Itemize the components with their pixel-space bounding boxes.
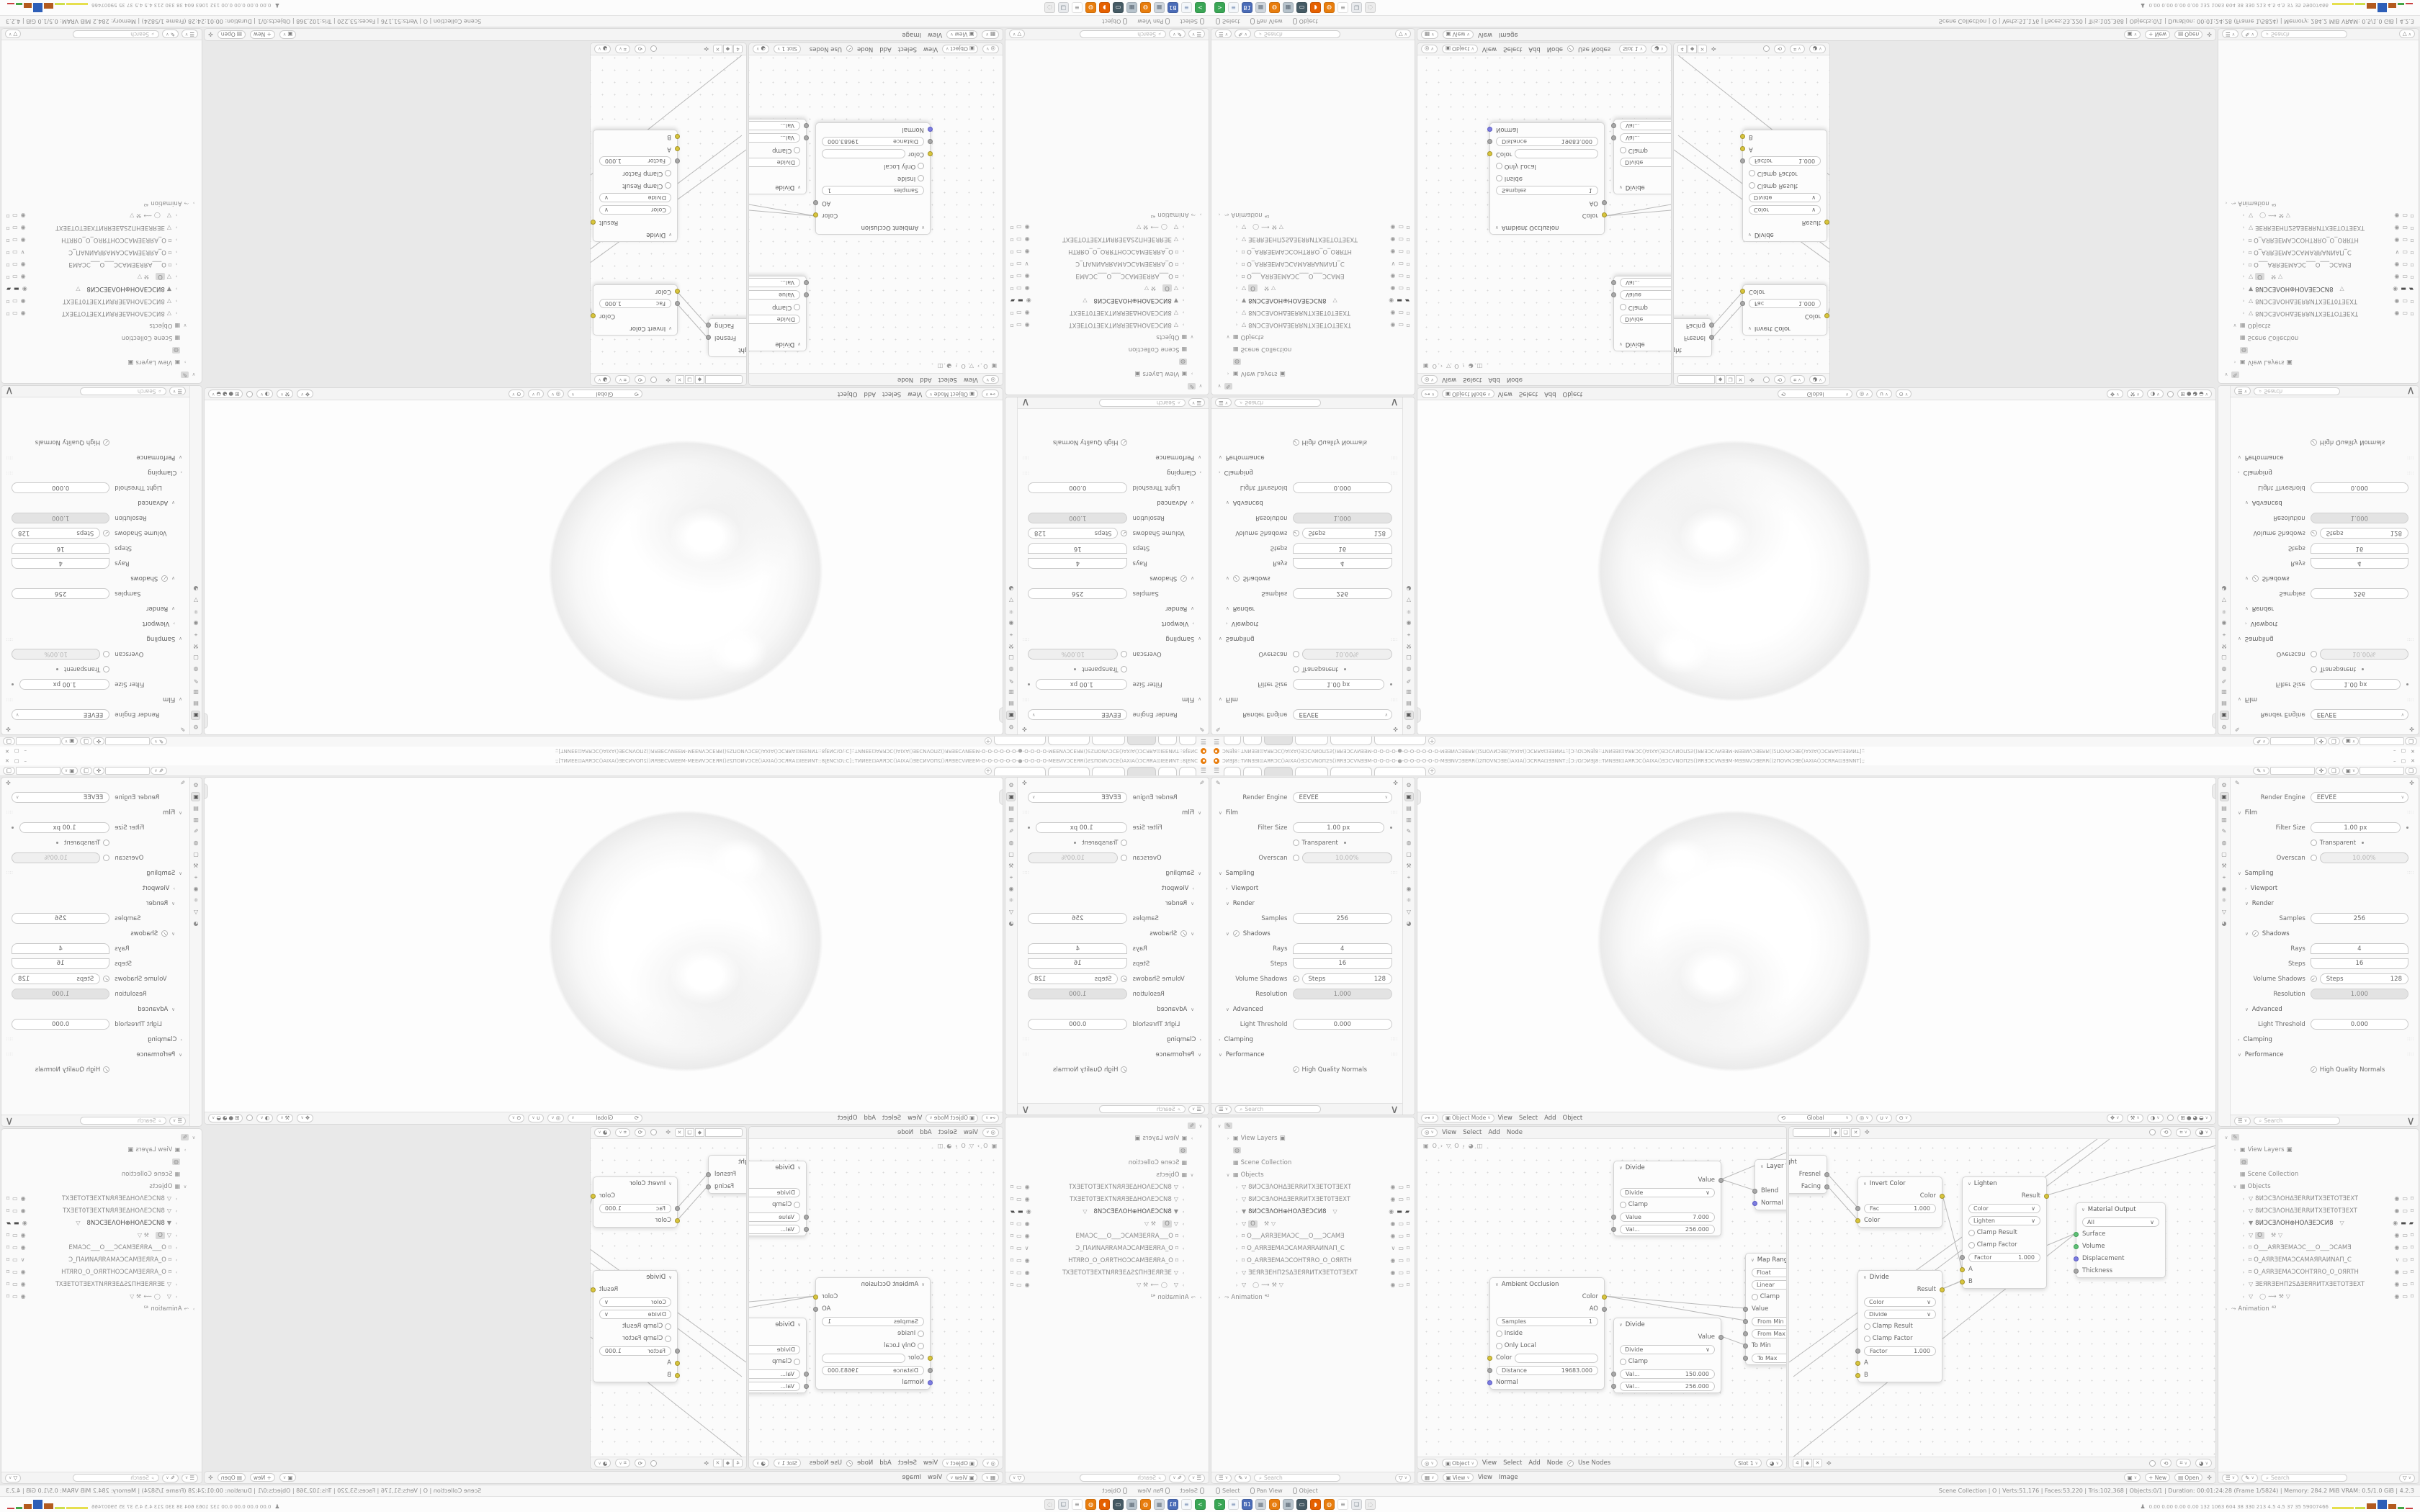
animate-dot-icon[interactable] <box>56 842 58 844</box>
camera-icon[interactable]: ⌑ <box>6 212 9 219</box>
expand-icon[interactable]: › <box>2241 1269 2246 1275</box>
hide-icon[interactable]: ◉ <box>2394 1281 2399 1287</box>
add-workspace-button[interactable]: + <box>1428 737 1435 744</box>
expand-icon[interactable]: ∨ <box>182 1184 188 1189</box>
input-socket[interactable] <box>1855 1349 1860 1354</box>
notepad-icon[interactable]: ≡ <box>1228 1499 1239 1510</box>
snap-dropdown[interactable]: ∪∨ <box>528 1114 544 1122</box>
subsection-render[interactable]: ∨Render <box>6 896 188 911</box>
properties-tab-0-icon[interactable]: ⚙ <box>1404 722 1414 732</box>
node-header[interactable]: ∨Layer Weight <box>1674 343 1711 356</box>
properties-tab-8-icon[interactable]: ⌖ <box>2220 873 2229 882</box>
terminal-icon[interactable]: > <box>1214 2 1225 13</box>
output-socket[interactable] <box>591 1194 596 1199</box>
camera-icon[interactable]: ⌑ <box>2411 261 2414 268</box>
chevron-icon[interactable]: ∨ <box>21 1256 25 1263</box>
outliner-row[interactable]: ›▽O⚒▽◉▭⌑ <box>2220 1229 2417 1241</box>
field-volume-shadow-steps[interactable]: Steps128 <box>12 973 100 984</box>
node-field-factor[interactable]: Factor1.000 <box>1968 1253 2040 1262</box>
workspace-tab-5[interactable] <box>1330 767 1372 775</box>
input-socket[interactable] <box>1855 1361 1860 1366</box>
node-field-samples[interactable]: Samples1 <box>822 186 924 195</box>
outliner-row[interactable]: ›▽◯⟿⚒▽◉▭⌑ <box>1214 221 1413 233</box>
snapping-dropdown[interactable]: ⌗∨ <box>615 1128 630 1137</box>
screen-icon[interactable]: ▭ <box>1016 1220 1022 1227</box>
properties-tab-11-icon[interactable]: ▽ <box>1404 907 1414 917</box>
user-count[interactable]: 4 <box>733 1459 743 1467</box>
checkbox-clamp-result[interactable] <box>1968 1230 1975 1236</box>
collapse-caret-icon[interactable]: ∨ <box>1760 1164 1764 1169</box>
funnel-filter-dropdown[interactable]: ▽∨ <box>1395 1474 1411 1482</box>
outliner-row-animation[interactable]: ›⤳Animation ⁴² <box>1007 209 1206 221</box>
camera-icon[interactable]: ⌑ <box>6 237 9 243</box>
menu-node[interactable]: Node <box>897 1129 913 1136</box>
outliner-row-active-tool[interactable]: ∨✎ <box>3 1131 200 1143</box>
screen-icon[interactable]: ▭ <box>1016 1196 1022 1202</box>
footer-circle[interactable] <box>1763 45 1770 52</box>
node-field-samples[interactable]: Samples1 <box>1496 1317 1598 1326</box>
node-header[interactable]: ∨Divide <box>1614 181 1671 194</box>
collapse-caret-icon[interactable]: ∨ <box>1748 232 1752 238</box>
orientation-dropdown[interactable]: ⟲ Global∨ <box>1778 390 1852 398</box>
expand-icon[interactable]: ∨ <box>1189 335 1195 341</box>
editor-type-dropdown[interactable]: ☰∨ <box>1188 399 1205 408</box>
subsection-render[interactable]: ∨Render <box>2232 601 2414 616</box>
properties-tab-8-icon[interactable]: ⌖ <box>1404 630 1414 639</box>
node-canvas-left[interactable]: ▣O›▽O›◕◫∨DivideValueDivide∨ ClampValue7.… <box>749 1139 1003 1457</box>
editor-type-dropdown[interactable]: ☰∨ <box>2234 387 2251 396</box>
field-filter-size[interactable]: 1.00 px <box>1293 822 1385 833</box>
screen-icon[interactable]: ▭ <box>2402 1293 2408 1300</box>
mode-dropdown[interactable]: ▣ Object Mode∨ <box>926 390 978 398</box>
prop-control[interactable]: 10.00% <box>1293 852 1399 863</box>
copy-view-layer-icon[interactable]: ❏ <box>3 737 15 745</box>
collapse-caret-icon[interactable]: ∨ <box>668 232 672 238</box>
field-rays[interactable]: 4 <box>1028 943 1128 954</box>
outliner-row[interactable]: ›▽8ИƆCƎΛOHΔƎERRИTXƎETOTƎEXT◉▭⌑ <box>1214 319 1413 331</box>
expand-icon[interactable]: › <box>182 1147 188 1153</box>
input-socket[interactable] <box>1487 151 1492 156</box>
field-rays[interactable]: 4 <box>2311 558 2408 569</box>
material-dropdown[interactable]: ◕∨ <box>1651 45 1667 53</box>
input-socket[interactable] <box>1487 139 1492 144</box>
node-select-divide[interactable]: Divide∨ <box>1620 158 1671 167</box>
scene-name-field[interactable] <box>105 737 150 745</box>
outliner-row[interactable]: ›⌑O_AЯRƎEMAƆCAMAЯRAИNAΠ_C∨▭⌑ <box>1214 1242 1413 1254</box>
node-select-color[interactable]: Color∨ <box>1968 1204 2040 1213</box>
animate-dot-icon[interactable] <box>1344 668 1346 670</box>
outliner-row[interactable]: ›▽8ИƆCƎΛOHΔƎERRИTXƎET0TƎEXT◉▭⌑ <box>1007 307 1206 319</box>
menu-view[interactable]: View <box>907 1115 922 1122</box>
camera-icon[interactable]: ⌑ <box>6 310 9 317</box>
checkbox-high-quality-normals[interactable] <box>103 1066 109 1073</box>
screen-icon[interactable]: ▭ <box>1398 322 1404 328</box>
prop-control[interactable]: 16 <box>1293 544 1399 554</box>
node-select-color[interactable]: Color∨ <box>599 205 671 215</box>
menu-select[interactable]: Select <box>1463 1129 1482 1136</box>
workspace-tab-1[interactable] <box>1179 767 1196 775</box>
menu-image[interactable]: Image <box>1499 31 1518 38</box>
node-invert-color[interactable]: ∨Invert ColorColorFac1.000Color <box>593 284 678 336</box>
editor-type-dropdown[interactable]: ▦∨ <box>1421 1473 1438 1482</box>
app-menu-icon[interactable]: ☰ <box>1201 737 1206 744</box>
outliner-row-objects-collection[interactable]: ∨▦Objects <box>2220 1180 2417 1192</box>
prop-control[interactable]: Transparent <box>6 840 109 847</box>
properties-tab-7-icon[interactable]: ⚒ <box>1007 642 1016 651</box>
outliner-row[interactable]: ›⌑O___AЯRƎEMAƆC___O___ƆCAMƎ◉▭⌑ <box>1007 270 1206 282</box>
expand-icon[interactable]: ∨ <box>2232 323 2238 329</box>
outliner-row[interactable]: ›▽8ИƆCƎΛOHΔƎERRИTXƎET0TƎEXT◉▭⌑ <box>1214 1193 1413 1205</box>
menu-select[interactable]: Select <box>882 1115 901 1122</box>
image-datablock-dropdown[interactable]: ▣∨ <box>279 1473 297 1482</box>
camera-icon[interactable]: ⌑ <box>1010 273 1013 279</box>
input-socket[interactable] <box>2074 1232 2079 1237</box>
node-header[interactable]: ∨Divide <box>749 1161 806 1174</box>
shading-mode-4-icon[interactable]: ◒ <box>2199 391 2204 397</box>
add-workspace-button[interactable]: + <box>1428 768 1435 775</box>
camera-icon[interactable]: ⌑ <box>1010 1184 1013 1190</box>
expand-icon[interactable]: › <box>2241 287 2246 292</box>
properties-tab-11-icon[interactable]: ▽ <box>192 907 201 917</box>
output-socket[interactable] <box>1940 1194 1945 1199</box>
checkbox-high-quality-normals[interactable] <box>1293 1066 1299 1073</box>
shader-object-dropdown[interactable]: ▣ Object∨ <box>942 1459 978 1467</box>
node-field-value[interactable]: Value7.000 <box>749 1212 800 1222</box>
firefox-icon[interactable]: ◗ <box>1099 2 1110 13</box>
menu-add[interactable]: Add <box>864 390 875 397</box>
properties-tab-0-icon[interactable]: ⚙ <box>2220 722 2229 732</box>
prop-control[interactable]: High Quality Normals <box>1293 1066 1399 1074</box>
pin-icon[interactable]: ✜ <box>1022 726 1027 732</box>
prop-control[interactable]: 1.000 <box>6 513 109 523</box>
properties-tab-9-icon[interactable]: ◉ <box>1404 618 1414 628</box>
field-steps[interactable]: 16 <box>12 958 109 969</box>
prop-control[interactable]: 1.00 px <box>1293 822 1399 833</box>
properties-tab-10-icon[interactable]: ⚛ <box>1404 607 1414 616</box>
checkbox-transparent[interactable] <box>103 840 109 846</box>
expand-icon[interactable]: › <box>174 1196 179 1202</box>
menu-image[interactable]: Image <box>902 31 921 38</box>
subsection-viewport[interactable]: ›Viewport <box>1213 881 1398 896</box>
menu-select[interactable]: Select <box>938 1129 957 1136</box>
user-count[interactable]: 4 <box>1677 45 1687 53</box>
workspace-tab-4[interactable] <box>1295 737 1328 745</box>
collapse-caret-icon[interactable]: ∨ <box>1619 184 1623 190</box>
prop-control[interactable]: 1.000 <box>6 989 109 999</box>
expand-icon[interactable]: › <box>1234 1246 1240 1251</box>
outliner-row-objects-collection[interactable]: ∨▦Objects <box>1214 331 1413 343</box>
output-socket[interactable] <box>706 1184 711 1189</box>
prop-control[interactable]: 4 <box>1022 943 1128 954</box>
checkbox-clamp-factor[interactable] <box>665 1336 671 1342</box>
refresh-icon[interactable]: ⟲ <box>635 1128 646 1137</box>
prop-control[interactable]: High Quality Normals <box>1022 1066 1128 1074</box>
pin-icon[interactable]: ✜ <box>2207 1475 2212 1481</box>
workspace-tab-1[interactable] <box>1224 767 1241 775</box>
camera-icon[interactable]: ⌑ <box>1407 1220 1410 1227</box>
chevron-icon[interactable]: ∨ <box>1025 261 1029 267</box>
node-ambient-occlusion[interactable]: ∨Ambient OcclusionColorAOSamples1 Inside… <box>815 1277 931 1390</box>
use-nodes-checkbox[interactable] <box>1567 1460 1574 1467</box>
outliner-row[interactable]: ›▽8ИƆCƎΛOHΔƎERRИTXƎETOTƎEXT◉▭⌑ <box>1007 1181 1206 1193</box>
prop-control[interactable]: 10.00% <box>1022 852 1128 863</box>
expand-icon[interactable]: ∨ <box>2223 372 2229 378</box>
screen-icon[interactable]: ▭ <box>12 1195 18 1202</box>
menu-add[interactable]: Add <box>920 376 931 383</box>
output-socket[interactable] <box>813 1295 818 1300</box>
shader-ball-dropdown[interactable]: ◎∨ <box>982 1459 999 1467</box>
subsection-viewport[interactable]: ›Viewport <box>2232 616 2414 631</box>
screen-icon[interactable]: ▬ <box>1397 297 1402 304</box>
section-performance[interactable]: ∨Performance∷∷ <box>1213 450 1398 465</box>
expand-icon[interactable]: › <box>1180 310 1186 316</box>
node-header[interactable]: ∨Invert Color <box>1858 1177 1942 1190</box>
section-performance[interactable]: ∨Performance∷∷ <box>2232 1047 2414 1062</box>
screen-icon[interactable]: ▬ <box>2401 286 2406 292</box>
checkbox-transparent[interactable] <box>2311 840 2317 846</box>
prop-control[interactable]: 16 <box>2311 544 2414 554</box>
node-header[interactable]: ∨Ambient Occlusion <box>1490 221 1604 234</box>
properties-tab-5-icon[interactable]: ◍ <box>1404 838 1414 847</box>
checkbox-transparent[interactable] <box>1121 666 1128 672</box>
properties-tab-0-icon[interactable]: ⚙ <box>192 722 201 732</box>
properties-tab-7-icon[interactable]: ⚒ <box>192 642 201 651</box>
expand-icon[interactable]: › <box>174 1233 179 1238</box>
app-menu-icon[interactable]: ☰ <box>1201 768 1206 775</box>
properties-tab-4-icon[interactable]: ✎ <box>192 676 201 685</box>
monitor-icon[interactable]: ▭ <box>1113 1499 1124 1510</box>
hide-icon[interactable]: ◉ <box>2393 286 2398 292</box>
properties-tab-5-icon[interactable]: ◍ <box>1404 665 1414 674</box>
node-divide[interactable]: ∨DivideValueDivide∨ ClampVal...150.000Va… <box>749 119 807 194</box>
menu-add[interactable]: Add <box>1528 1459 1540 1467</box>
proportional-edit-dropdown[interactable]: ⊙∨ <box>1896 390 1912 398</box>
checkbox-clamp[interactable] <box>1752 1294 1758 1300</box>
properties-tab-5-icon[interactable]: ◍ <box>192 665 201 674</box>
menu-view[interactable]: View <box>923 1459 938 1467</box>
node-field-factor[interactable]: Factor1.000 <box>599 1346 671 1356</box>
screen-icon[interactable]: ▭ <box>2402 1232 2408 1238</box>
checkbox-shadows[interactable] <box>1180 575 1187 582</box>
copy-material-icon[interactable]: ❏ <box>1726 375 1735 384</box>
prop-control[interactable]: 0.000 <box>1293 482 1399 493</box>
output-socket[interactable] <box>1602 1307 1607 1312</box>
menu-view[interactable]: View <box>1478 31 1492 38</box>
collapse-caret-icon[interactable]: ∨ <box>1619 1165 1623 1171</box>
close-button[interactable]: ✕ <box>5 749 9 755</box>
node-canvas-right[interactable]: ∨Layer WeightFresnelFacing∨Invert ColorC… <box>591 1139 746 1457</box>
shading-mode-2-icon[interactable]: ● <box>2187 391 2192 397</box>
outliner-row-world[interactable]: ◍ <box>1214 356 1413 368</box>
hide-icon[interactable]: ◉ <box>21 1293 26 1300</box>
properties-tab-9-icon[interactable]: ◉ <box>2220 618 2229 628</box>
field-light-threshold[interactable]: 0.000 <box>1293 1019 1393 1030</box>
chevron-icon[interactable]: ∨ <box>2395 1256 2399 1263</box>
output-socket[interactable] <box>1602 1295 1607 1300</box>
animate-dot-icon[interactable] <box>2406 683 2408 685</box>
checkbox-only-local[interactable] <box>918 163 924 169</box>
field-volume-shadow-steps[interactable]: Steps128 <box>12 528 100 539</box>
screen-icon[interactable]: ▭ <box>12 212 18 219</box>
overlay-dropdown[interactable]: ◕∨ <box>2195 1459 2212 1467</box>
node-select-divide[interactable]: Divide∨ <box>599 193 671 202</box>
blender-icon[interactable]: ◍ <box>1269 1499 1280 1510</box>
prop-control[interactable]: 4 <box>6 558 109 569</box>
pin-icon[interactable]: ✜ <box>2409 780 2414 786</box>
hide-icon[interactable]: ◉ <box>21 1232 26 1238</box>
pin-icon[interactable]: ✜ <box>6 726 11 732</box>
node-field-val-[interactable]: Val...150.000 <box>749 133 800 143</box>
input-socket[interactable] <box>1611 1372 1616 1377</box>
outliner-row[interactable]: ›▽ƎEЯRƎEHΠ2SΔƎEЯRИTXƎETOTƎEXT◉▭⌑ <box>1214 233 1413 246</box>
screen-icon[interactable]: ▭ <box>12 261 18 268</box>
checkbox-shadows[interactable] <box>161 930 168 937</box>
properties-tab-7-icon[interactable]: ⚒ <box>2220 861 2229 870</box>
properties-tab-10-icon[interactable]: ⚛ <box>1007 607 1016 616</box>
outliner-row-scene-collection[interactable]: ▦Scene Collection <box>1007 343 1206 356</box>
hide-icon[interactable]: ◉ <box>1025 1233 1030 1239</box>
expand-icon[interactable]: ∨ <box>1225 335 1231 341</box>
camera-icon[interactable]: ⌑ <box>2411 1207 2414 1214</box>
camera-icon[interactable]: ⌑ <box>2411 1281 2414 1287</box>
viewport-3d[interactable]: ⊶∨ ▣ Object Mode∨ ViewSelectAddObject ⟲ … <box>204 777 1003 1125</box>
xray-circle[interactable] <box>246 391 253 397</box>
prop-control[interactable]: 4 <box>1293 558 1399 569</box>
prop-control[interactable]: 1.00 px <box>1022 679 1128 690</box>
header-circle[interactable] <box>2149 1129 2156 1135</box>
properties-tab-3-icon[interactable]: ▥ <box>192 815 201 824</box>
properties-tab-6-icon[interactable]: ▢ <box>192 850 201 859</box>
screen-icon[interactable]: ▭ <box>12 1269 18 1275</box>
output-socket[interactable] <box>1940 1287 1945 1292</box>
hide-icon[interactable]: ◉ <box>1390 273 1395 279</box>
node-field-val-[interactable]: Val...256.000 <box>1620 278 1671 287</box>
refresh-icon[interactable]: ⟲ <box>1774 45 1785 53</box>
node-header[interactable]: ∨Invert Color <box>1743 322 1827 335</box>
prop-control[interactable]: 0.000 <box>6 482 109 493</box>
shader-object-dropdown[interactable]: ▣ Object∨ <box>1442 1459 1478 1467</box>
outliner-row[interactable]: ›▽◯⟿⚒▽◉▭⌑ <box>2220 210 2417 222</box>
node-ambient-occlusion[interactable]: ∨Ambient OcclusionColorAOSamples1 Inside… <box>1489 1277 1605 1390</box>
maximize-button[interactable]: ▢ <box>14 749 19 755</box>
open-image-button[interactable]: ▤ Open <box>218 30 246 39</box>
prop-control[interactable]: 16 <box>2311 959 2414 969</box>
hide-icon[interactable]: ◉ <box>22 286 27 292</box>
select-render-engine[interactable]: EEVEE∨ <box>2311 792 2408 803</box>
output-socket[interactable] <box>2044 1194 2049 1199</box>
field-overscan[interactable]: 10.00% <box>2320 649 2408 660</box>
animate-dot-icon[interactable] <box>1074 668 1076 670</box>
prop-control[interactable]: 1.000 <box>1293 989 1399 999</box>
unlink-material-icon[interactable]: ✕ <box>675 375 684 384</box>
expand-icon[interactable]: › <box>174 1282 179 1287</box>
snap-dropdown[interactable]: ∪∨ <box>528 390 544 398</box>
maximize-button[interactable]: ▢ <box>2401 758 2406 764</box>
node-select-color[interactable]: Color∨ <box>1749 205 1821 215</box>
input-socket[interactable] <box>1611 1384 1616 1389</box>
subsection-viewport[interactable]: ›Viewport <box>1022 616 1207 631</box>
menu-select[interactable]: Select <box>1503 45 1522 53</box>
outliner-row[interactable]: ›▽8ИƆCƎΛOHΔƎERRИTXƎETOTƎEXT◉▭⌑ <box>1007 319 1206 331</box>
expand-icon[interactable]: › <box>174 287 179 292</box>
hide-icon[interactable]: ◉ <box>1390 224 1395 230</box>
menu-add[interactable]: Add <box>1544 1115 1556 1122</box>
filter-dropdown[interactable]: ✎∨ <box>2241 1474 2258 1482</box>
screen-icon[interactable]: ▭ <box>1398 285 1404 292</box>
camera-icon[interactable]: ▰ <box>2409 1220 2414 1226</box>
prop-control[interactable]: High Quality Normals <box>1022 439 1128 446</box>
menu-add[interactable]: Add <box>1544 390 1556 397</box>
section-clamping[interactable]: ›Clamping∷∷ <box>1213 1032 1398 1047</box>
node-field-factor[interactable]: Factor1.000 <box>1749 156 1821 166</box>
expand-icon[interactable]: › <box>2232 360 2238 366</box>
expand-icon[interactable]: › <box>1189 372 1195 377</box>
slot-dropdown[interactable]: Slot 1∨ <box>1734 1459 1762 1467</box>
checkbox-clamp[interactable] <box>1620 147 1626 153</box>
prop-control[interactable]: Steps128 <box>6 973 109 984</box>
camera-icon[interactable]: ⌑ <box>1010 1257 1013 1264</box>
properties-tab-1-icon[interactable]: ▣ <box>1404 711 1414 720</box>
animate-dot-icon[interactable] <box>2362 842 2364 844</box>
field-volume-shadow-steps[interactable]: Steps128 <box>1028 528 1119 539</box>
field-filter-size[interactable]: 1.00 px <box>2311 822 2401 833</box>
expand-icon[interactable]: › <box>1180 298 1186 304</box>
input-socket[interactable] <box>1740 289 1745 294</box>
node-divide[interactable]: ∨DivideResultColor∨Divide∨ Clamp Result … <box>593 1270 678 1382</box>
node-field-samples[interactable]: Samples1 <box>822 1317 924 1326</box>
input-socket[interactable] <box>1611 135 1616 140</box>
hide-icon[interactable]: ◉ <box>2393 1220 2398 1226</box>
menu-view[interactable]: View <box>928 31 942 38</box>
properties-tab-3-icon[interactable]: ▥ <box>1404 688 1414 697</box>
animate-dot-icon[interactable] <box>1344 842 1346 844</box>
prop-control[interactable]: 0.000 <box>1293 1019 1399 1030</box>
pin-icon[interactable]: ✜ <box>1393 726 1398 732</box>
scene-selector[interactable]: ✎∨ ✜ ❏ <box>80 767 167 775</box>
field-overscan[interactable]: 10.00% <box>12 852 100 863</box>
notepad-icon[interactable]: ≡ <box>1181 2 1192 13</box>
menu-add[interactable]: Add <box>879 1459 891 1467</box>
use-nodes-checkbox[interactable] <box>846 45 853 52</box>
outliner-row-animation[interactable]: ›⤳Animation ⁴² <box>3 1302 200 1315</box>
hide-icon[interactable]: ◉ <box>2394 261 2399 268</box>
properties-tab-5-icon[interactable]: ◍ <box>1007 665 1016 674</box>
subsection-shadows[interactable]: ∨Shadows <box>6 571 188 586</box>
outliner-row-active-tool[interactable]: ∨✎ <box>1214 1120 1413 1132</box>
properties-tab-11-icon[interactable]: ▽ <box>2220 907 2229 917</box>
view-layer-selector[interactable]: ▣∨ ❏ <box>3 737 78 745</box>
prop-control[interactable]: Steps128 <box>6 528 109 539</box>
user-count[interactable]: 4 <box>733 45 743 53</box>
screen-icon[interactable]: ▭ <box>1398 1245 1404 1251</box>
field-steps[interactable]: 16 <box>1293 958 1393 969</box>
screen-icon[interactable]: ▭ <box>1398 310 1404 316</box>
outliner-row[interactable]: ›⌑O_AЯRƎEMAƆCOHTЯRO_O_OЯRTH◉▭⌑ <box>2220 1266 2417 1278</box>
material-dropdown[interactable]: ◕∨ <box>753 1459 769 1467</box>
prop-control[interactable]: 10.00% <box>2311 649 2414 660</box>
camera-icon[interactable]: ▰ <box>2409 286 2414 292</box>
workspace-tab-5[interactable] <box>1048 737 1090 745</box>
material-name-field[interactable] <box>705 1128 743 1137</box>
properties-tab-10-icon[interactable]: ⚛ <box>2220 607 2229 616</box>
outliner-row-world[interactable]: ◍ <box>3 344 200 356</box>
proportional-edit-dropdown[interactable]: ⊙∨ <box>508 390 525 398</box>
maximize-button[interactable]: ▢ <box>2401 749 2406 755</box>
funnel-filter-dropdown[interactable]: ▽∨ <box>1395 30 1411 39</box>
screen-icon[interactable]: ▭ <box>1398 1269 1404 1276</box>
outliner-row[interactable]: ›▽ƎEЯRƎEHΠ2SΔƎEЯRИTXƎETOTƎEXT◉▭⌑ <box>1007 1266 1206 1279</box>
pivot-dropdown[interactable]: ◎∨ <box>547 1114 564 1122</box>
